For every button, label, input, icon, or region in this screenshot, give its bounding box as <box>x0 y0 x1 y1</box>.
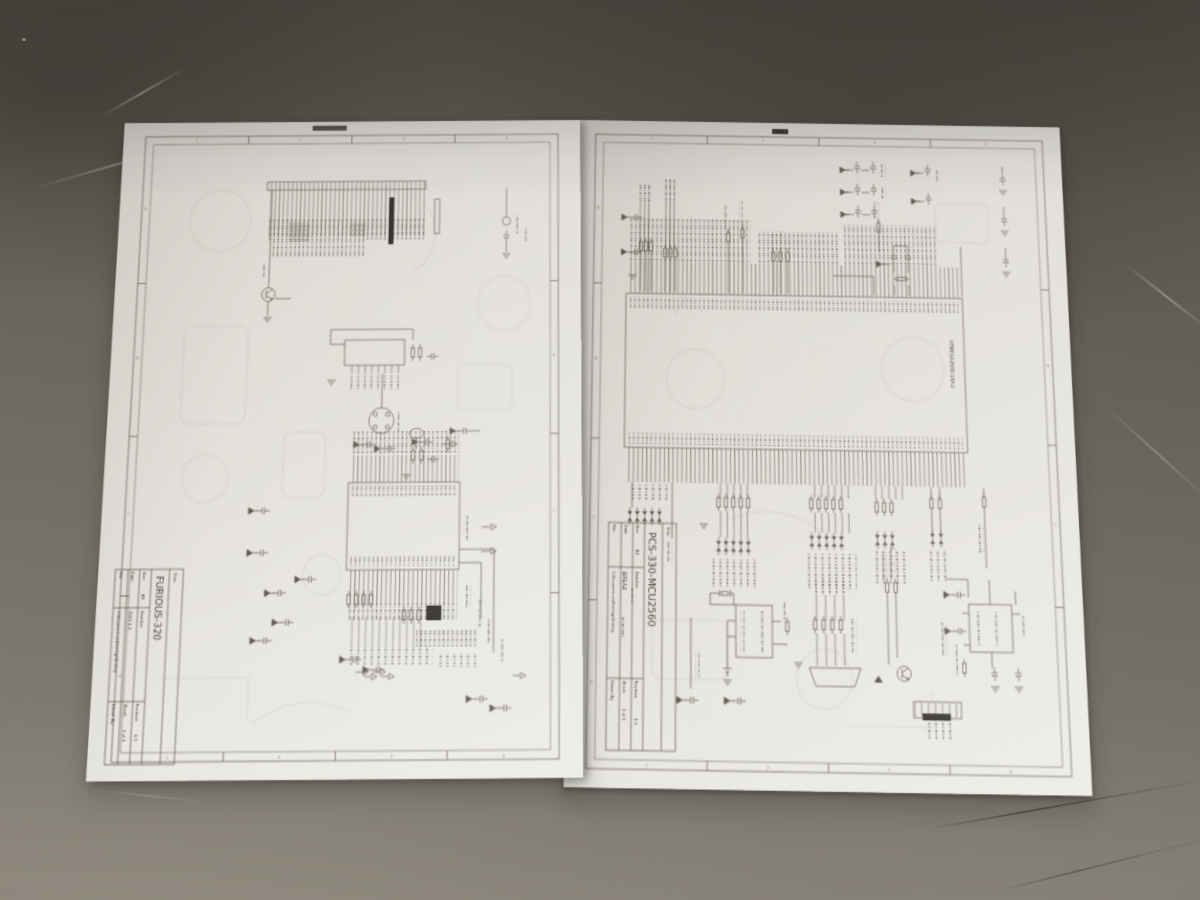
frame-ref: 4 <box>506 137 508 141</box>
frame-ref: A <box>144 207 147 211</box>
frame-ref: 1 <box>645 764 647 769</box>
photo-of-schematics: 1 2 3 4 1 2 3 4 A B C D B C <box>0 0 1200 900</box>
frame-ref: B <box>136 356 139 360</box>
frame-ref: 2 <box>278 755 280 760</box>
size-label: Size <box>634 525 638 534</box>
mcu-part-number: ATMEGA2560-16AU <box>947 340 955 388</box>
floor-speck <box>22 38 26 41</box>
frame-ref: B <box>553 353 555 357</box>
frame-ref: 3 <box>403 138 405 142</box>
number-label: Number <box>138 611 143 628</box>
frame-ref: 2 <box>762 139 764 143</box>
revision-value: 1.0 <box>132 734 137 742</box>
drawn-by-label: Drawn By: <box>609 680 614 701</box>
floor-scratch <box>90 789 210 804</box>
frame-ref: B <box>1047 364 1049 368</box>
right-sheet-drawing: 1 2 3 4 1 2 3 4 A B C D B C <box>564 120 1093 796</box>
sheet-label: Sheet: <box>621 681 625 694</box>
file-label: File: <box>118 572 123 580</box>
size-value: A4 <box>140 594 145 600</box>
floor-crack <box>998 834 1200 891</box>
frame-ref: 4 <box>503 754 505 759</box>
title-label: Title <box>665 525 670 536</box>
misc-top-right-parts <box>502 188 528 257</box>
frame-ref: 1 <box>196 139 198 143</box>
frame-ref: 1 <box>166 756 168 761</box>
led-groups <box>805 485 951 593</box>
size-label: Size <box>141 572 146 581</box>
frame-ref: 1 <box>650 138 652 142</box>
schematic-sheet-left: 1 2 3 4 1 2 3 4 A B C D B C <box>86 120 583 781</box>
below-mcu-resistor-group <box>700 483 758 587</box>
frame-ref: B <box>595 357 597 361</box>
revision-label: Revision <box>133 704 138 721</box>
file-value: C:\Documents and Settings\Desktop <box>610 571 615 632</box>
sheet-label: Sheet: <box>122 704 127 718</box>
small-ic-circuit <box>327 329 439 391</box>
file-value: C:\Documents and Settings\Desktop <box>113 611 121 673</box>
revision-value: 1.0 <box>633 718 637 726</box>
frame-ref: 3 <box>888 768 890 773</box>
title-block: Title PCS-330-MCU2560 Size A4 Number Rev… <box>606 522 677 751</box>
frame-ref: A <box>597 206 600 210</box>
floor-scratch <box>98 67 186 119</box>
size-value: A4 <box>634 549 638 555</box>
frame-ref: 3 <box>390 754 392 759</box>
frame-ref: C <box>127 512 130 516</box>
solid-bar <box>388 197 394 244</box>
frame-ref: C <box>592 515 595 519</box>
floor-scratch <box>1123 262 1200 331</box>
schematic-sheet-right: 1 2 3 4 1 2 3 4 A B C D B C <box>564 120 1093 796</box>
frame-ref: 3 <box>874 141 876 145</box>
number-label: Number <box>634 572 638 589</box>
right-cap-column <box>998 166 1011 276</box>
file-label: File: <box>611 525 615 533</box>
title-label: Title <box>172 571 178 582</box>
date-label: Date <box>623 525 627 535</box>
date-value: 2010-1-1 <box>127 611 132 630</box>
mcu-ic: ATMEGA2560-16AU <box>624 217 969 487</box>
schematic-sheets: 1 2 3 4 1 2 3 4 A B C D B C <box>81 120 1109 787</box>
date-value: 2010-1-1 <box>622 572 626 590</box>
regulator-circuit <box>943 579 1028 692</box>
frame-ref: D <box>118 674 122 679</box>
solid-bar <box>923 713 951 720</box>
rtc-circuit <box>710 590 790 706</box>
sheet-value: 1 of 1 <box>120 730 125 742</box>
left-sheet-drawing: 1 2 3 4 1 2 3 4 A B C D B C <box>86 120 583 781</box>
paper-edge-mark <box>313 126 347 131</box>
frame-ref: 4 <box>985 143 987 147</box>
decoupling-rows <box>840 161 942 219</box>
sheet-title: PCS-330-MCU2560 <box>645 532 656 627</box>
drawn-by-label: Drawn By: <box>109 704 115 725</box>
frame-ref: C <box>553 509 556 513</box>
revision-label: Revision <box>633 681 638 698</box>
frame-ref: 4 <box>1010 770 1012 775</box>
frame-ref: 2 <box>767 766 769 771</box>
frame-ref: D <box>590 681 593 686</box>
date-label: Date <box>129 572 134 583</box>
solid-bar <box>426 605 441 620</box>
below-mcu-right <box>977 488 988 569</box>
floor-scratch <box>1101 402 1200 504</box>
sheet-value: 1 of 1 <box>621 708 625 720</box>
header-connector <box>265 181 440 258</box>
title-block: Title FURIOUS-320 Size A4 Number Revisio… <box>104 569 183 765</box>
frame-ref: C <box>1054 523 1057 527</box>
paper-edge-mark <box>772 129 788 134</box>
sheet-title: FURIOUS-320 <box>151 576 165 641</box>
frame-ref: 2 <box>299 138 301 142</box>
